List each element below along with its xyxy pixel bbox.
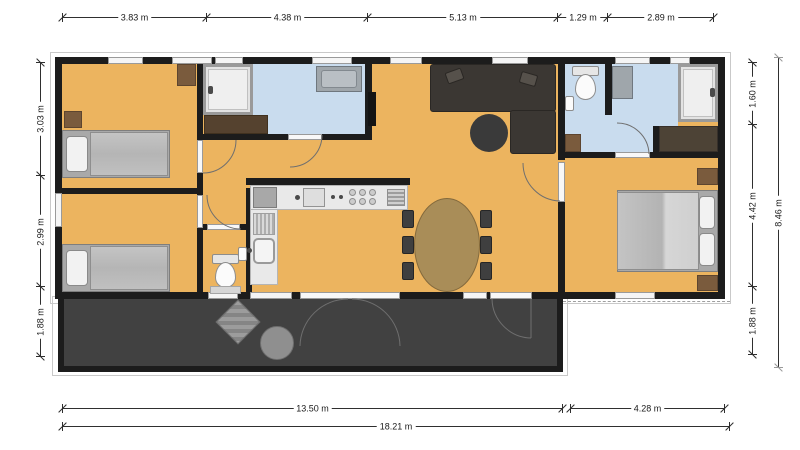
- dim-label: 4.42 m: [748, 189, 759, 223]
- dim-label: 4.38 m: [271, 13, 305, 24]
- dim-top-3: 5.13 m: [368, 17, 558, 18]
- dim-right-2: 4.42 m: [752, 125, 753, 287]
- dim-left-1: 3.03 m: [40, 62, 41, 176]
- dim-label: 3.83 m: [118, 13, 152, 24]
- dim-top-4: 1.29 m: [558, 17, 608, 18]
- dim-top-1: 3.83 m: [62, 17, 207, 18]
- dim-right-outer: 8.46 m: [778, 57, 779, 368]
- dim-label: 13.50 m: [293, 404, 332, 415]
- dim-left-2: 2.99 m: [40, 176, 41, 287]
- dim-label: 3.03 m: [36, 102, 47, 136]
- dim-label: 2.99 m: [36, 215, 47, 249]
- dim-label: 18.21 m: [377, 422, 416, 433]
- floorplan-canvas: 3.83 m 4.38 m 5.13 m 1.29 m 2.89 m 3.03 …: [0, 0, 800, 450]
- dim-bottom-outer: 18.21 m: [62, 426, 730, 427]
- dim-label: 8.46 m: [774, 196, 785, 230]
- dim-left-3: 1.88 m: [40, 287, 41, 357]
- dim-bottom-1: 13.50 m: [62, 408, 563, 409]
- dim-label: 1.29 m: [566, 13, 600, 24]
- dim-label: 5.13 m: [446, 13, 480, 24]
- dim-right-1: 1.60 m: [752, 62, 753, 125]
- dim-top-2: 4.38 m: [207, 17, 368, 18]
- dim-right-3: 1.88 m: [752, 287, 753, 355]
- dim-label: 1.88 m: [748, 304, 759, 338]
- dim-label: 2.89 m: [644, 13, 678, 24]
- dim-label: 1.88 m: [36, 305, 47, 339]
- dim-label: 1.60 m: [748, 77, 759, 111]
- dim-label: 4.28 m: [631, 404, 665, 415]
- dim-top-5: 2.89 m: [608, 17, 714, 18]
- door-arcs: [0, 0, 800, 450]
- dim-bottom-2: 4.28 m: [570, 408, 725, 409]
